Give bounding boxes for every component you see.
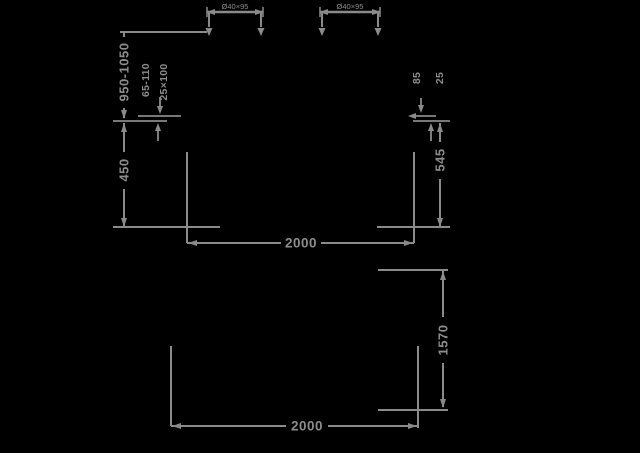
bracket-left-label: Ø40×95 — [222, 2, 249, 11]
front-width-value: 2000 — [285, 236, 317, 251]
right-height-value: 545 — [433, 148, 448, 171]
lower-height-value: 450 — [117, 158, 132, 181]
top-width-value: 2000 — [291, 419, 323, 434]
dimension-height-range: 950-1050 — [116, 33, 132, 119]
bracket-right-label: Ø40×95 — [337, 2, 364, 11]
background — [0, 0, 640, 453]
depth-value: 1570 — [436, 325, 451, 356]
right-offset-label: 85 — [411, 72, 423, 84]
left-slot-label: 25×100 — [158, 63, 170, 100]
height-range-value: 950-1050 — [117, 43, 132, 102]
dimension-drawing: Ø40×95 Ø40×95 — [0, 0, 640, 453]
right-thickness-label: 25 — [434, 72, 446, 84]
drawing-canvas: Ø40×95 Ø40×95 — [0, 0, 640, 453]
left-offset-label: 65-110 — [140, 63, 152, 97]
